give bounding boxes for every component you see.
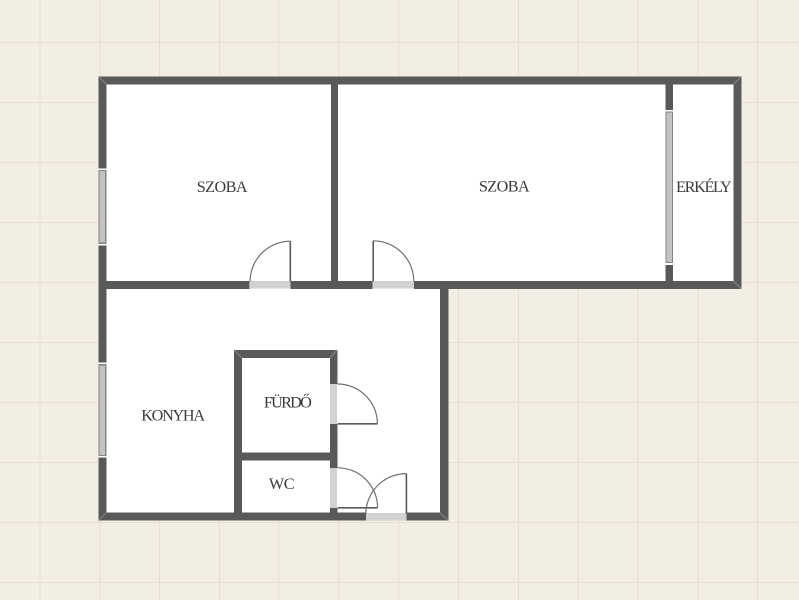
svg-text:FÜRDŐ: FÜRDŐ [264,393,312,412]
svg-text:SZOBA: SZOBA [479,177,530,195]
svg-text:WC: WC [269,475,294,493]
svg-text:SZOBA: SZOBA [197,178,248,196]
svg-text:KONYHA: KONYHA [141,407,205,425]
svg-text:ERKÉLY: ERKÉLY [676,177,732,196]
